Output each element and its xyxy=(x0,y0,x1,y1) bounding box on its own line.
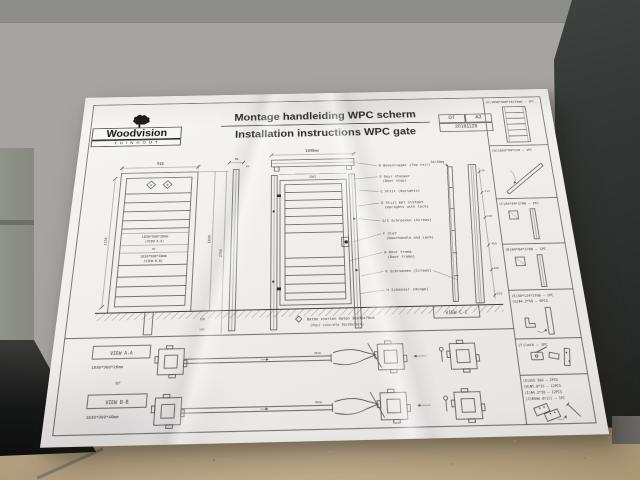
gate-assembly-view: 1090mm 1001 xyxy=(268,148,363,330)
marker-b: B xyxy=(166,183,168,187)
ground-hatch xyxy=(94,304,504,321)
view-bb-row: VIEW B-B 1830*900*40mm 40mm xyxy=(84,386,486,431)
gate-front-dims: 916 1150 1830 2700 300 100 xyxy=(93,161,229,336)
dim-1090mm: 1090mm xyxy=(305,149,319,153)
view-aa-row: VIEW A-A 1830*900*26mm 26mm xyxy=(90,338,481,381)
post-plan-4 xyxy=(150,394,185,429)
post-plan-2 xyxy=(374,340,408,373)
part-b-label: (B)1090*90*120 — 1PC xyxy=(491,148,532,152)
post-plan-1 xyxy=(154,345,188,378)
dim-916: 916 xyxy=(157,162,164,166)
views-or: or xyxy=(115,381,122,386)
gray-green-panel-left xyxy=(0,148,34,346)
dim-100: 100 xyxy=(199,327,205,332)
part-c-post-drawing xyxy=(508,209,539,240)
logo-box: Woodvision TUINHOUT xyxy=(90,126,181,147)
part-b-rail-drawing xyxy=(503,163,548,194)
gray-box-bottom-right xyxy=(612,416,640,444)
part-g-label: (G)SUS 304 — 2PCS xyxy=(523,377,559,383)
part-e-stop-drawing xyxy=(523,307,554,334)
dim-28: 28 xyxy=(481,168,485,172)
title-block-table: DT A3 20181128 xyxy=(438,113,494,132)
part-d-label: (D)84*84*2700 — 1PC xyxy=(505,247,547,252)
sheet-title: Montage handleiding WPC scherm Installat… xyxy=(220,108,431,140)
meta-date: 20181128 xyxy=(439,122,494,132)
callout-top-rail: B Bovenligger (Top rail) xyxy=(379,163,431,168)
callout-uprights: C Stijl (Uprights) xyxy=(380,189,420,194)
marker-a: A xyxy=(150,183,152,187)
wall-top-shadow xyxy=(0,0,640,23)
callout-screws-2: K Schroeven (Screws) xyxy=(385,268,432,273)
part-a-label: (A)1830*900*26/40mm — 1PC xyxy=(485,100,535,104)
part-i-label: (I)Φ4.2*50 — 12PCS xyxy=(524,389,562,395)
dim-1150: 1150 xyxy=(103,237,108,245)
gate-view-1: (VIEW A-A) xyxy=(145,239,165,243)
part-h-label: (H)Φ5.0*25 — 12PCS xyxy=(523,383,561,389)
part-f-lock-drawing xyxy=(530,346,572,366)
hinge-and-screw-drawing xyxy=(533,402,581,421)
logo-subtitle: TUINHOUT xyxy=(92,138,181,146)
part-a-gate-drawing xyxy=(502,106,530,142)
dim-480: 480 xyxy=(493,266,499,270)
panel-shelf-line xyxy=(0,220,34,225)
callout-hinge: H Schanier (Hinge) xyxy=(386,287,428,292)
dim-2700: 2700 xyxy=(218,249,223,257)
part-e-screws-label: (G)Φ4.2*50 — 6PCS xyxy=(512,299,548,304)
view-bb-text: VIEW B-B xyxy=(105,399,129,406)
view-aa-dim: 1830*900*26mm xyxy=(91,365,123,370)
callout-uprights-lock-en: (Uprights with lock) xyxy=(384,204,429,209)
dim-thickness: 34/40mm xyxy=(430,160,444,164)
dim-460: 460 xyxy=(491,241,497,245)
callout-lock-en: (Doorhandle and Lock) xyxy=(386,235,434,240)
callout-screws-1: G/I Schroeven (Screws) xyxy=(382,218,432,223)
part-f-lock-label: (F)lock — 1PC xyxy=(518,342,548,347)
concrete-note: Beton storten Gaten 30x30x70cm (Pour con… xyxy=(296,314,376,328)
photo-scene: (A)1830*900*26/40mm — 1PC (B)1090*90*120… xyxy=(0,0,640,480)
gate-or: or xyxy=(152,247,157,251)
dim-40mm: 40mm xyxy=(315,400,323,405)
post-plan-3 xyxy=(446,340,481,373)
note-diamond-icon xyxy=(296,316,302,322)
hinge-bottom xyxy=(277,287,281,290)
callout-door-stop-en: (Door stop) xyxy=(383,179,407,183)
part-c-label: (C)84*84*2700 — 1PC xyxy=(499,201,539,206)
gate-section-bar-a xyxy=(184,354,332,366)
hinge-top xyxy=(277,194,281,197)
part-d-post-drawing xyxy=(515,255,547,287)
dim-84: 84 xyxy=(246,165,250,169)
view-bb-dim: 1830*900*40mm xyxy=(86,414,119,420)
post-plan-5 xyxy=(377,389,412,424)
view-aa-text: VIEW A-A xyxy=(110,350,134,356)
dim-190: 190 xyxy=(487,214,493,218)
callout-labels: B Bovenligger (Top rail) E Deur stopper … xyxy=(345,161,458,294)
woodvision-logo: Woodvision TUINHOUT xyxy=(90,115,182,148)
gate-view-2: (VIEW B-B) xyxy=(143,259,163,264)
post-plan-6 xyxy=(450,388,486,423)
note-dutch: Beton storten Gaten 30x30x70cm xyxy=(307,316,375,322)
instruction-sheet: (A)1830*900*26/40mm — 1PC (B)1090*90*120… xyxy=(40,89,609,448)
dim-415: 415 xyxy=(484,189,490,193)
part-j-label: (J)Φ3mm drill — 1PC xyxy=(525,396,566,402)
part-e-label: (E)50*124*2700 — 1PC xyxy=(511,293,554,298)
gate-section-bar-b xyxy=(181,403,333,416)
note-english: (Pour concrete 30x30x70cm) xyxy=(310,322,364,328)
dim-1001: 1001 xyxy=(309,175,317,179)
dim-1830: 1830 xyxy=(207,235,212,243)
dim-250: 250 xyxy=(496,291,502,295)
dim-26mm: 26mm xyxy=(314,351,322,356)
callout-door-frame-en: (Door frame) xyxy=(387,254,415,259)
dim-90: 90 xyxy=(235,157,239,161)
